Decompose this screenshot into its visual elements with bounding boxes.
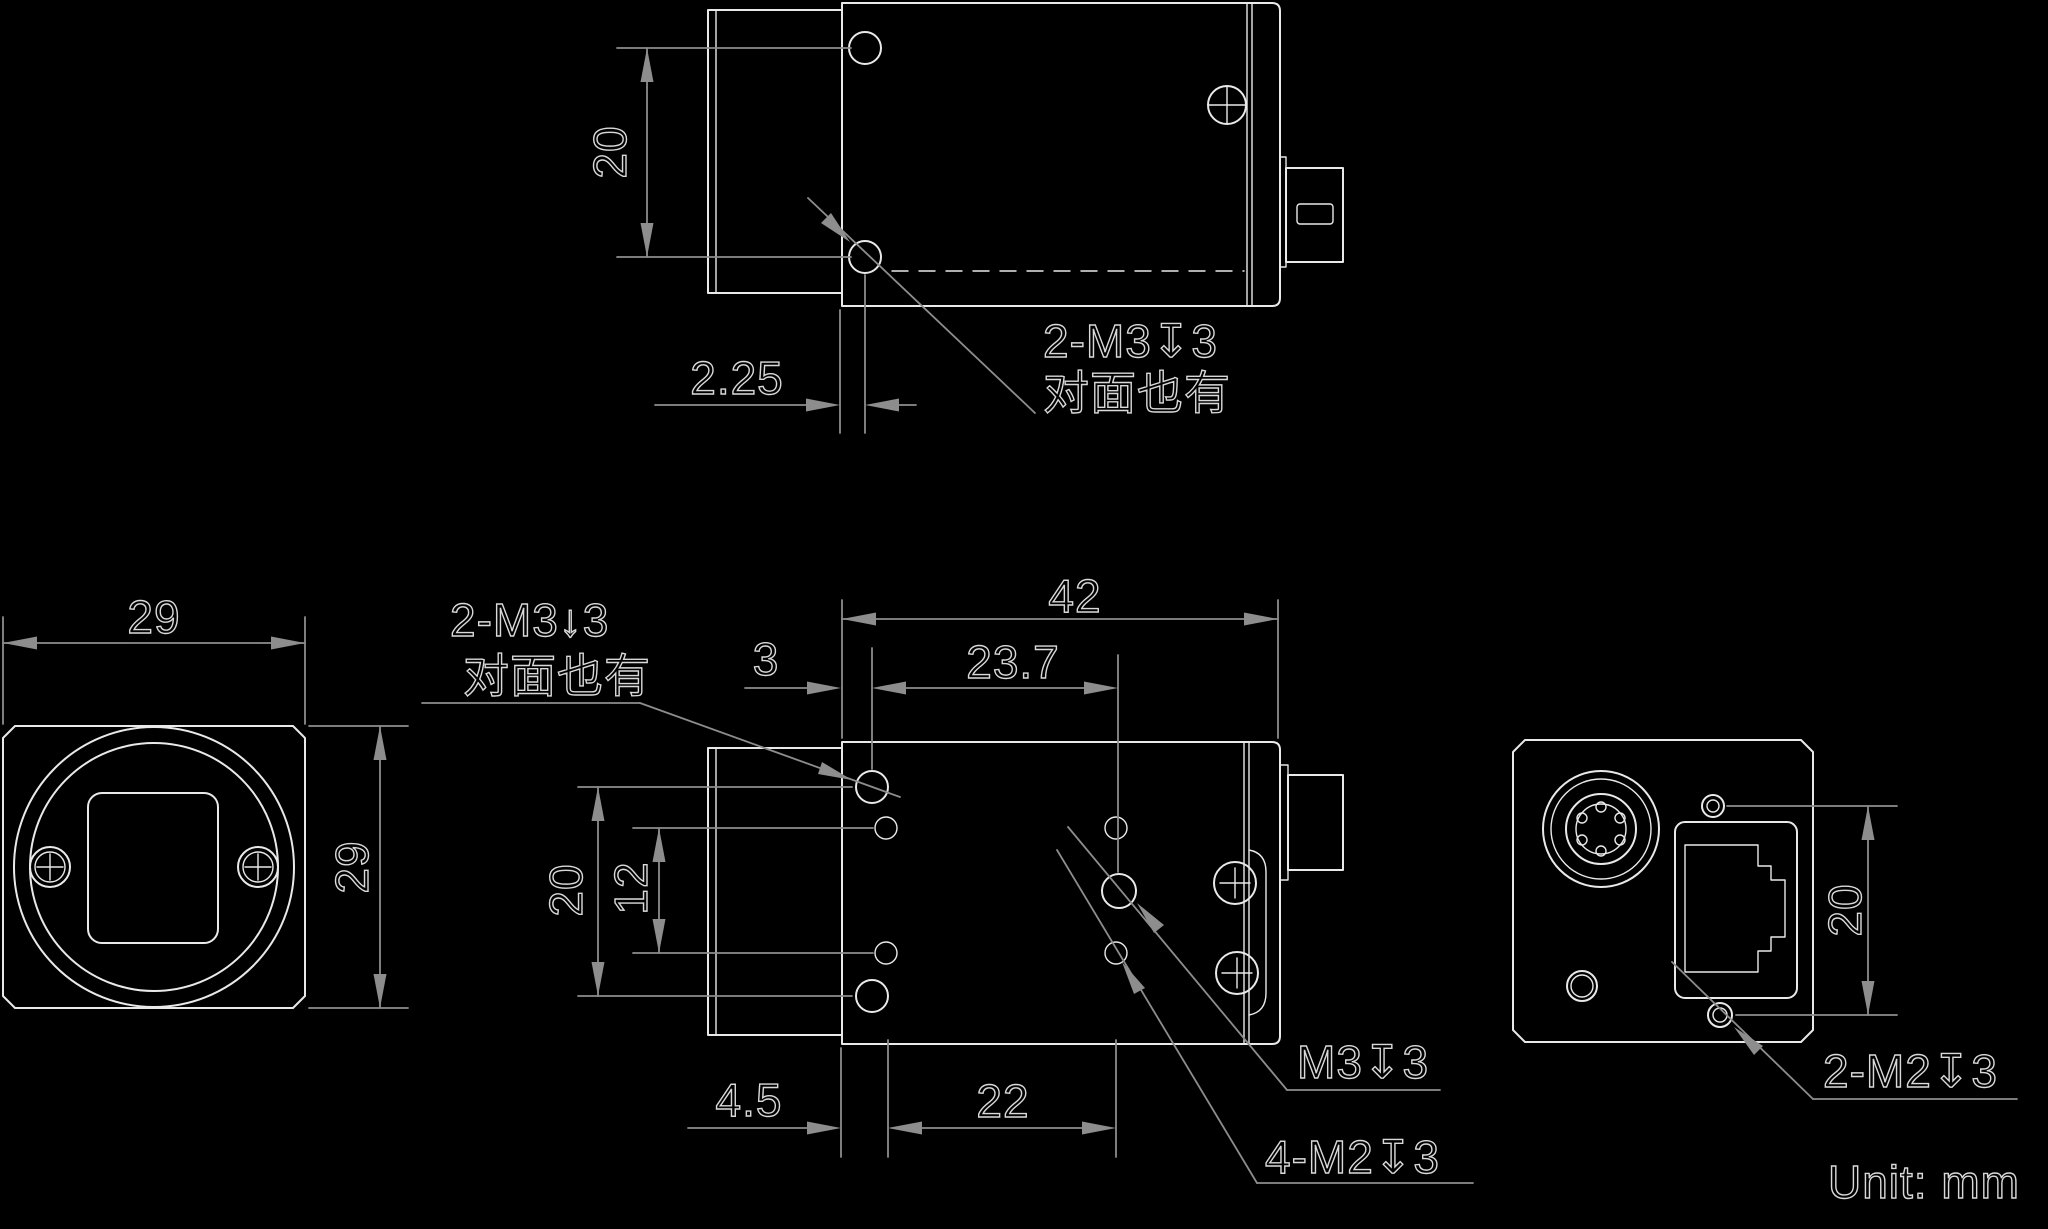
dim-value: 12 xyxy=(605,861,657,914)
dimension-drawing: 20 2.25 2-M3↧3 对面也有 xyxy=(0,0,2048,1229)
dim-side-m2-spacing: 12 xyxy=(605,828,873,953)
rj45-connector-stub xyxy=(1280,765,1343,880)
thread-callout: 2-M3↧3 对面也有 xyxy=(808,198,1231,419)
lens-barrel-outline xyxy=(708,10,842,293)
phillips-screw-icon xyxy=(1216,952,1258,994)
phillips-screw-icon xyxy=(1208,86,1246,124)
sensor-window xyxy=(88,793,218,943)
dim-side-m3-offsets: 3 23.7 xyxy=(745,633,1118,872)
dim-value: 22 xyxy=(976,1075,1029,1127)
dim-front-height: 29 xyxy=(309,726,408,1008)
camera-body-outline xyxy=(842,742,1280,1044)
thread-label: 2-M3↓3 xyxy=(450,594,609,646)
power-io-connector xyxy=(1543,771,1659,887)
m2-hole xyxy=(1105,817,1127,839)
m3-hole xyxy=(856,980,888,1012)
thread-callout: 4-M2↧3 xyxy=(1057,850,1473,1183)
m3-hole xyxy=(849,241,881,273)
camera-body-outline xyxy=(842,3,1280,306)
m2-hole xyxy=(1702,795,1724,817)
thread-label: M3↧3 xyxy=(1297,1036,1429,1088)
dim-side-m3-spacing: 20 xyxy=(540,787,852,996)
phillips-screw-icon xyxy=(238,847,278,887)
thread-callout: 2-M2↧3 xyxy=(1672,962,2017,1099)
side-view: 42 3 23.7 20 xyxy=(422,570,1473,1183)
thread-note: 对面也有 xyxy=(1043,367,1231,419)
thread-label: 2-M3↧3 xyxy=(1043,315,1218,367)
rear-view: 20 2-M2↧3 xyxy=(1513,740,2017,1099)
m2-hole xyxy=(1708,1003,1732,1027)
thread-note: 对面也有 xyxy=(463,650,651,702)
rear-cover-rib xyxy=(1249,850,1266,1015)
lens-barrel-outline xyxy=(708,748,842,1035)
led-indicator xyxy=(1567,971,1597,1001)
phillips-screw-icon xyxy=(30,847,70,887)
thread-label: 2-M2↧3 xyxy=(1823,1045,1998,1097)
dim-side-length: 42 xyxy=(842,570,1278,738)
drawing-page: 20 2.25 2-M3↧3 对面也有 xyxy=(0,0,2048,1229)
dim-value: 20 xyxy=(584,125,636,178)
m3-hole xyxy=(849,32,881,64)
m2-hole xyxy=(875,942,897,964)
dim-value: 23.7 xyxy=(966,636,1060,688)
dim-front-width: 29 xyxy=(3,591,305,724)
front-view: 29 29 xyxy=(3,591,408,1008)
dim-value: 2.25 xyxy=(690,352,784,404)
dim-value: 42 xyxy=(1048,570,1101,622)
dim-value: 20 xyxy=(1819,883,1871,936)
rear-plate-outline xyxy=(1513,740,1813,1042)
dim-value: 20 xyxy=(540,863,592,916)
m2-hole xyxy=(875,817,897,839)
dim-top-hole-setback: 2.25 xyxy=(655,275,916,433)
thread-label: 4-M2↧3 xyxy=(1265,1131,1440,1183)
unit-note: Unit: mm xyxy=(1828,1156,2020,1208)
thread-callout: 2-M3↓3 对面也有 xyxy=(422,594,900,797)
dim-value: 29 xyxy=(127,591,180,643)
thread-callout: M3↧3 xyxy=(1068,827,1440,1090)
lens-mount-ring-inner xyxy=(30,743,278,991)
rj45-jack xyxy=(1675,822,1797,998)
dim-value: 29 xyxy=(326,840,378,893)
top-view: 20 2.25 2-M3↧3 对面也有 xyxy=(584,3,1343,433)
phillips-screw-icon xyxy=(1214,862,1256,904)
dim-value: 4.5 xyxy=(716,1074,783,1126)
dim-value: 3 xyxy=(753,633,780,685)
rj45-connector-stub xyxy=(1280,157,1343,267)
dim-top-hole-spacing: 20 xyxy=(584,48,851,257)
dim-side-m2-offsets: 4.5 22 xyxy=(688,1040,1116,1157)
